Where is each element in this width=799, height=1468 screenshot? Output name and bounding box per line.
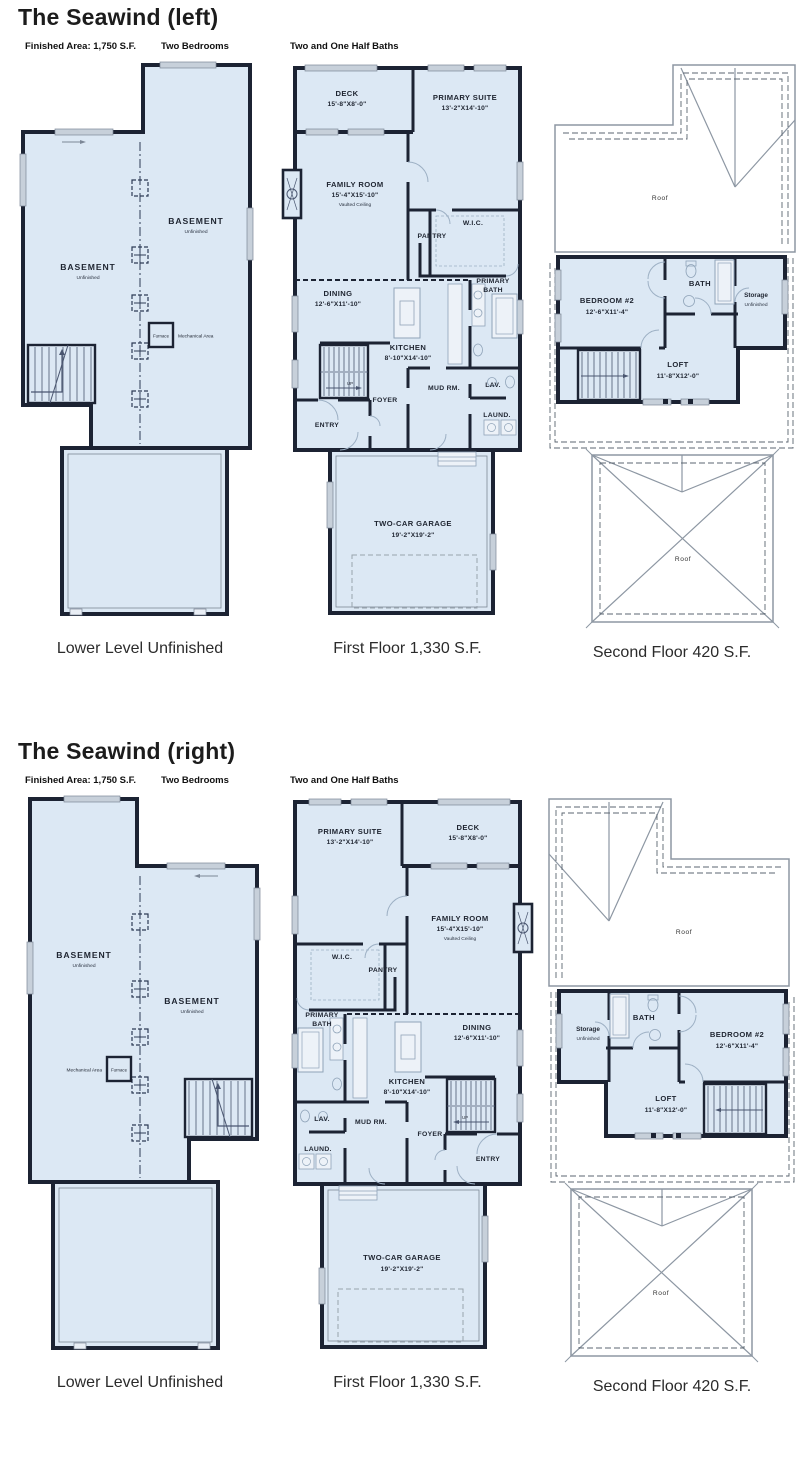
- room-label-dining: DINING: [324, 289, 353, 298]
- label-stairs-up: UP: [462, 1115, 468, 1120]
- room-dims-deck: 15'-8"X8'-0": [328, 101, 367, 108]
- second-floor-geometry-mirrored: [549, 799, 794, 1362]
- caption-lower-level: Lower Level Unfinished: [10, 640, 270, 658]
- room-dims-primary-suite: 13'-2"X14'-10": [442, 105, 489, 112]
- room-label-mud-room: MUD RM.: [355, 1119, 387, 1126]
- room-label-basement: BASEMENT: [164, 996, 219, 1006]
- label-furnace: Furnace: [111, 1068, 128, 1073]
- room-label-dining: DINING: [463, 1023, 492, 1032]
- room-dims-dining: 12'-6"X11'-10": [454, 1035, 500, 1042]
- room-label-wic: W.I.C.: [332, 954, 352, 961]
- room-label-deck: DECK: [456, 823, 479, 832]
- lower-level-plan: BASEMENT Unfinished BASEMENT Unfinished …: [10, 792, 270, 1362]
- room-label-laundry: LAUND.: [304, 1146, 331, 1153]
- caption-first-floor: First Floor 1,330 S.F.: [280, 640, 535, 658]
- room-label-family-room: FAMILY ROOM: [326, 180, 383, 189]
- room-dims-garage: 19'-2"X19'-2": [392, 532, 435, 539]
- room-label-loft: LOFT: [667, 360, 688, 369]
- room-label-laundry: LAUND.: [483, 412, 510, 419]
- first-floor-geometry-mirrored: [292, 799, 532, 1347]
- room-label-primary-bath-2: BATH: [483, 287, 503, 294]
- first-floor-plan: DECK 15'-8"X8'-0" PRIMARY SUITE 13'-2"X1…: [280, 792, 535, 1367]
- room-label-primary-suite: PRIMARY SUITE: [433, 93, 497, 102]
- caption-second-floor: Second Floor 420 S.F.: [545, 644, 799, 662]
- room-sub-vaulted: Vaulted Ceiling: [444, 936, 477, 942]
- room-dims-dining: 12'-6"X11'-10": [315, 301, 361, 308]
- room-label-basement: BASEMENT: [56, 950, 111, 960]
- caption-lower-level: Lower Level Unfinished: [10, 1374, 270, 1392]
- room-dims-loft: 11'-8"X12'-0": [645, 1107, 687, 1114]
- stat-baths: Two and One Half Baths: [290, 775, 399, 786]
- room-label-foyer: FOYER: [418, 1131, 443, 1138]
- room-label-loft: LOFT: [655, 1094, 676, 1103]
- room-label-pantry: PANTRY: [369, 967, 398, 974]
- label-roof-upper: Roof: [652, 195, 668, 202]
- room-label-garage: TWO-CAR GARAGE: [374, 519, 452, 528]
- room-dims-loft: 11'-8"X12'-0": [657, 373, 699, 380]
- room-dims-family-room: 15'-4"X15'-10": [437, 926, 484, 933]
- label-furnace: Furnace: [153, 334, 170, 339]
- room-sub-unfinished: Unfinished: [184, 229, 207, 235]
- room-label-primary-bath-1: PRIMARY: [305, 1012, 338, 1019]
- caption-first-floor: First Floor 1,330 S.F.: [280, 1374, 535, 1392]
- room-sub-unfinished: Unfinished: [576, 1036, 599, 1042]
- room-dims-kitchen: 8'-10"X14'-10": [384, 1089, 431, 1096]
- stat-baths: Two and One Half Baths: [290, 41, 399, 52]
- room-label-primary-bath-1: PRIMARY: [476, 278, 509, 285]
- label-roof-upper: Roof: [676, 929, 692, 936]
- second-floor-geometry: [550, 65, 795, 628]
- first-floor-geometry: [283, 65, 523, 613]
- first-floor-plan: DECK 15'-8"X8'-0" PRIMARY SUITE 13'-2"X1…: [280, 58, 535, 633]
- section-seawind-left: The Seawind (left) Finished Area: 1,750 …: [0, 0, 799, 734]
- stat-bedrooms: Two Bedrooms: [161, 775, 229, 786]
- room-label-lav: LAV.: [314, 1116, 330, 1123]
- page-title: The Seawind (right): [18, 738, 235, 765]
- room-label-basement: BASEMENT: [60, 262, 115, 272]
- room-label-bath: BATH: [689, 279, 711, 288]
- room-dims-kitchen: 8'-10"X14'-10": [385, 355, 432, 362]
- room-label-wic: W.I.C.: [463, 220, 483, 227]
- room-label-bedroom2: BEDROOM #2: [710, 1030, 764, 1039]
- section-seawind-right: The Seawind (right) Finished Area: 1,750…: [0, 734, 799, 1468]
- label-mechanical-area: Mechanical Area: [178, 334, 214, 340]
- room-dims-bedroom2: 12'-6"X11'-4": [716, 1043, 758, 1050]
- room-label-lav: LAV.: [485, 382, 501, 389]
- label-mechanical-area: Mechanical Area: [67, 1068, 103, 1074]
- room-dims-primary-suite: 13'-2"X14'-10": [327, 839, 374, 846]
- room-sub-unfinished: Unfinished: [180, 1009, 203, 1015]
- label-stairs-up: UP: [347, 381, 353, 386]
- room-dims-garage: 19'-2"X19'-2": [381, 1266, 424, 1273]
- second-floor-plan: Roof BEDROOM #2 12'-6"X11'-4" BATH Stora…: [545, 792, 799, 1367]
- room-dims-bedroom2: 12'-6"X11'-4": [586, 309, 628, 316]
- room-label-mud-room: MUD RM.: [428, 385, 460, 392]
- stat-finished-area: Finished Area: 1,750 S.F.: [25, 775, 136, 786]
- label-roof-lower: Roof: [653, 1290, 669, 1297]
- room-label-storage: Storage: [576, 1026, 600, 1033]
- lower-level-plan: BASEMENT Unfinished BASEMENT Unfinished …: [10, 58, 270, 628]
- room-label-basement: BASEMENT: [168, 216, 223, 226]
- room-label-primary-bath-2: BATH: [312, 1021, 332, 1028]
- room-label-storage: Storage: [744, 292, 768, 299]
- room-label-bath: BATH: [633, 1013, 655, 1022]
- room-label-bedroom2: BEDROOM #2: [580, 296, 634, 305]
- room-sub-unfinished: Unfinished: [72, 963, 95, 969]
- page-title: The Seawind (left): [18, 4, 218, 31]
- room-label-entry: ENTRY: [315, 422, 339, 429]
- room-sub-unfinished: Unfinished: [744, 302, 767, 308]
- second-floor-plan: Roof BEDROOM #2 12'-6"X11'-4" BATH Stora…: [545, 58, 799, 633]
- room-dims-deck: 15'-8"X8'-0": [449, 835, 488, 842]
- room-label-deck: DECK: [335, 89, 358, 98]
- room-label-kitchen: KITCHEN: [390, 343, 427, 352]
- room-label-primary-suite: PRIMARY SUITE: [318, 827, 382, 836]
- lower-level-geometry: [20, 62, 253, 615]
- lower-level-geometry-mirrored: [27, 796, 260, 1349]
- stat-finished-area: Finished Area: 1,750 S.F.: [25, 41, 136, 52]
- room-label-entry: ENTRY: [476, 1156, 500, 1163]
- room-label-foyer: FOYER: [373, 397, 398, 404]
- room-label-kitchen: KITCHEN: [389, 1077, 426, 1086]
- room-label-family-room: FAMILY ROOM: [431, 914, 488, 923]
- room-label-pantry: PANTRY: [418, 233, 447, 240]
- room-label-garage: TWO-CAR GARAGE: [363, 1253, 441, 1262]
- room-sub-vaulted: Vaulted Ceiling: [339, 202, 372, 208]
- caption-second-floor: Second Floor 420 S.F.: [545, 1378, 799, 1396]
- room-sub-unfinished: Unfinished: [76, 275, 99, 281]
- stat-bedrooms: Two Bedrooms: [161, 41, 229, 52]
- label-roof-lower: Roof: [675, 556, 691, 563]
- room-dims-family-room: 15'-4"X15'-10": [332, 192, 379, 199]
